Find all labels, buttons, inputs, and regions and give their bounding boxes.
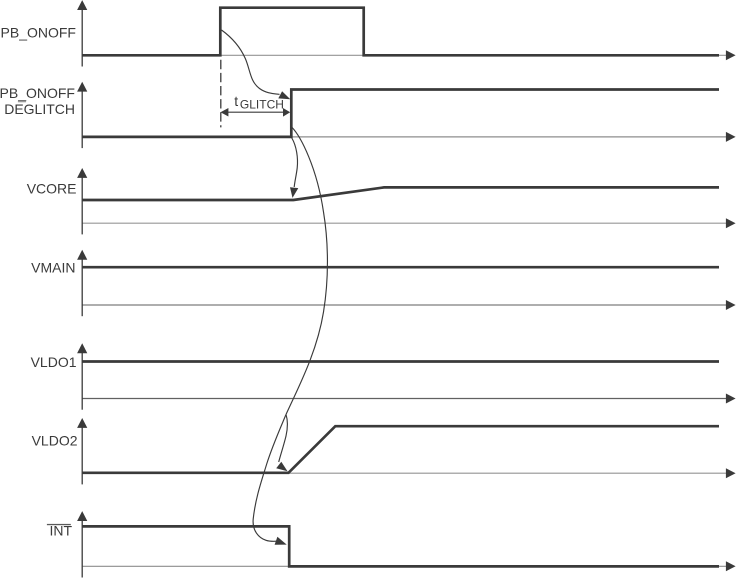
svg-text:VCORE: VCORE (27, 180, 77, 196)
svg-text:DEGLITCH: DEGLITCH (4, 101, 75, 117)
svg-text:PB_ONOFF: PB_ONOFF (0, 85, 75, 101)
svg-text:VMAIN: VMAIN (31, 260, 75, 276)
svg-text:VLDO1: VLDO1 (31, 354, 77, 370)
svg-text:t: t (234, 93, 238, 109)
svg-text:VLDO2: VLDO2 (32, 433, 78, 449)
svg-text:PB_ONOFF: PB_ONOFF (1, 25, 76, 41)
svg-text:GLITCH: GLITCH (240, 98, 284, 112)
